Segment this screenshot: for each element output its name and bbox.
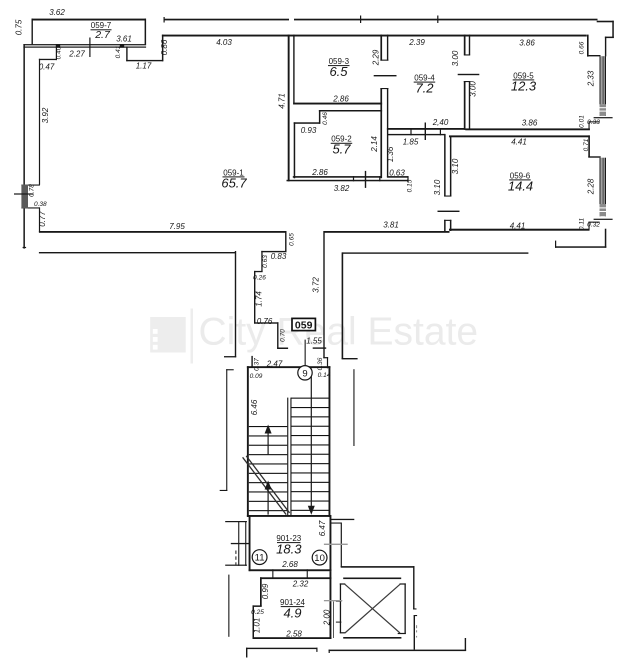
svg-text:14.4: 14.4	[508, 178, 533, 193]
svg-text:City Real Estate: City Real Estate	[199, 311, 479, 354]
svg-text:0.77: 0.77	[38, 211, 47, 227]
svg-text:5.7: 5.7	[332, 142, 351, 157]
svg-text:0.40: 0.40	[56, 46, 63, 59]
svg-text:10: 10	[314, 553, 325, 564]
svg-text:0.63: 0.63	[262, 255, 269, 268]
svg-text:2.68: 2.68	[281, 560, 298, 569]
svg-text:12.3: 12.3	[511, 78, 537, 93]
svg-text:1.01: 1.01	[253, 618, 262, 634]
svg-text:0.14: 0.14	[318, 372, 331, 379]
svg-text:4.71: 4.71	[278, 93, 287, 109]
svg-text:2.00: 2.00	[323, 609, 332, 626]
svg-text:0.99: 0.99	[261, 583, 270, 599]
svg-text:0.71: 0.71	[583, 138, 590, 151]
svg-text:0.86: 0.86	[160, 39, 169, 55]
svg-text:0.36: 0.36	[317, 357, 324, 370]
svg-text:0.33: 0.33	[587, 119, 600, 126]
svg-text:1.17: 1.17	[136, 62, 152, 71]
svg-text:0.70: 0.70	[280, 329, 287, 342]
svg-text:0.32: 0.32	[587, 222, 600, 229]
svg-text:0.09: 0.09	[250, 373, 263, 380]
svg-text:3.10: 3.10	[433, 179, 442, 195]
svg-text:0.11: 0.11	[579, 218, 586, 231]
svg-text:3.92: 3.92	[41, 107, 50, 123]
svg-text:18.3: 18.3	[276, 541, 302, 556]
svg-text:0.46: 0.46	[322, 112, 329, 125]
svg-text:2.29: 2.29	[372, 49, 381, 66]
svg-text:2.86: 2.86	[332, 95, 349, 104]
svg-text:2.14: 2.14	[370, 136, 379, 153]
svg-text:3.61: 3.61	[116, 35, 132, 44]
svg-text:0.41: 0.41	[115, 45, 122, 58]
svg-text:6.47: 6.47	[318, 520, 327, 536]
svg-text:0.47: 0.47	[39, 63, 55, 72]
svg-text:0.25: 0.25	[251, 609, 264, 616]
svg-text:0.26: 0.26	[253, 275, 266, 282]
svg-text:2.27: 2.27	[68, 50, 85, 59]
svg-text:65.7: 65.7	[221, 175, 247, 190]
svg-text:3.00: 3.00	[451, 50, 460, 66]
svg-text:1.55: 1.55	[306, 337, 322, 346]
svg-text:2.86: 2.86	[311, 168, 328, 177]
svg-text:0.65: 0.65	[289, 233, 296, 246]
svg-text:2.32: 2.32	[292, 579, 309, 588]
svg-text:059: 059	[295, 320, 313, 332]
svg-text:3.86: 3.86	[522, 119, 538, 128]
svg-text:3.10: 3.10	[451, 158, 460, 174]
svg-text:3.72: 3.72	[312, 277, 321, 293]
svg-text:9: 9	[302, 368, 307, 379]
svg-text:6.46: 6.46	[250, 399, 259, 415]
svg-text:3.82: 3.82	[334, 184, 350, 193]
svg-text:0.63: 0.63	[389, 169, 405, 178]
svg-text:0.01: 0.01	[579, 115, 586, 128]
svg-text:3.62: 3.62	[49, 8, 65, 17]
svg-text:4.03: 4.03	[216, 38, 232, 47]
svg-text:0.93: 0.93	[301, 126, 317, 135]
svg-text:2.39: 2.39	[408, 38, 425, 47]
svg-text:4.9: 4.9	[283, 605, 301, 620]
svg-text:2.47: 2.47	[266, 360, 283, 369]
svg-text:2.28: 2.28	[587, 178, 596, 195]
svg-text:3.86: 3.86	[519, 39, 535, 48]
svg-text:0.15: 0.15	[407, 179, 414, 192]
svg-text:0.76: 0.76	[257, 317, 273, 326]
svg-text:3.81: 3.81	[383, 221, 399, 230]
svg-text:7.95: 7.95	[169, 222, 185, 231]
svg-text:7.2: 7.2	[415, 81, 434, 96]
svg-text:1.85: 1.85	[403, 138, 419, 147]
svg-text:11: 11	[255, 553, 265, 564]
svg-text:1.74: 1.74	[255, 291, 264, 307]
svg-text:3.00: 3.00	[469, 81, 478, 97]
svg-text:0.75: 0.75	[15, 19, 24, 35]
svg-text:0.66: 0.66	[579, 41, 586, 54]
svg-text:4.41: 4.41	[510, 222, 526, 231]
svg-text:4.41: 4.41	[511, 138, 527, 147]
svg-text:2.33: 2.33	[587, 70, 596, 87]
svg-text:0.83: 0.83	[271, 252, 287, 261]
svg-text:0.37: 0.37	[254, 358, 261, 371]
svg-text:2.58: 2.58	[285, 629, 302, 638]
svg-text:1.36: 1.36	[386, 146, 395, 162]
svg-text:2,40: 2,40	[432, 118, 449, 127]
svg-text:0.38: 0.38	[34, 201, 47, 208]
svg-text:6.5: 6.5	[329, 64, 348, 79]
svg-text:2.7: 2.7	[94, 29, 111, 41]
svg-text:0.78: 0.78	[29, 184, 36, 197]
